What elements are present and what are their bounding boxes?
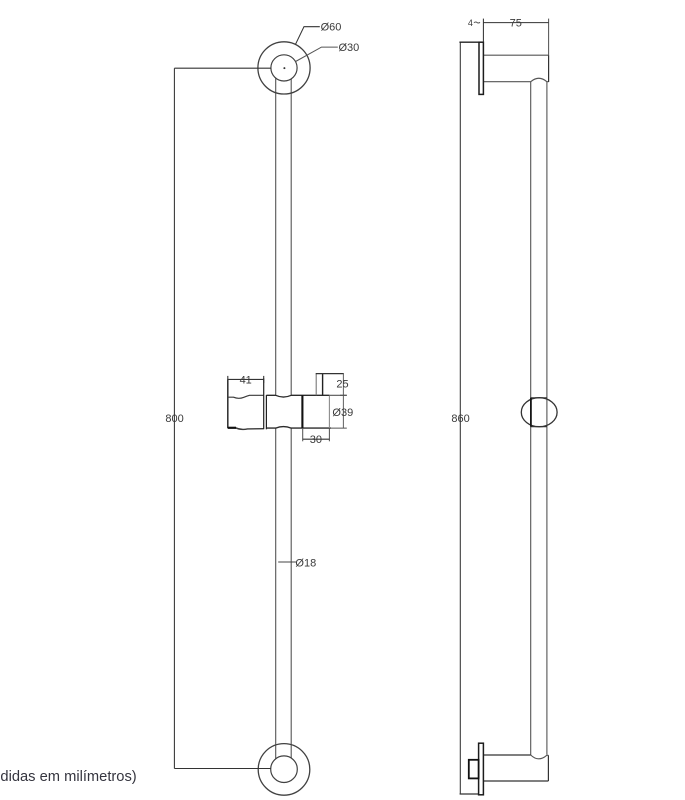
svg-text:30: 30 [310,434,322,446]
svg-text:25: 25 [336,379,348,391]
svg-text:75: 75 [510,18,522,30]
svg-text:Ø39: Ø39 [332,407,353,419]
svg-text:41: 41 [240,374,252,386]
svg-text:4: 4 [468,18,473,28]
svg-text:800: 800 [165,413,183,425]
svg-text:Ø60: Ø60 [321,22,342,34]
svg-text:Ø18: Ø18 [295,557,316,569]
svg-text:Ø30: Ø30 [339,42,360,54]
svg-text:860: 860 [451,413,469,425]
